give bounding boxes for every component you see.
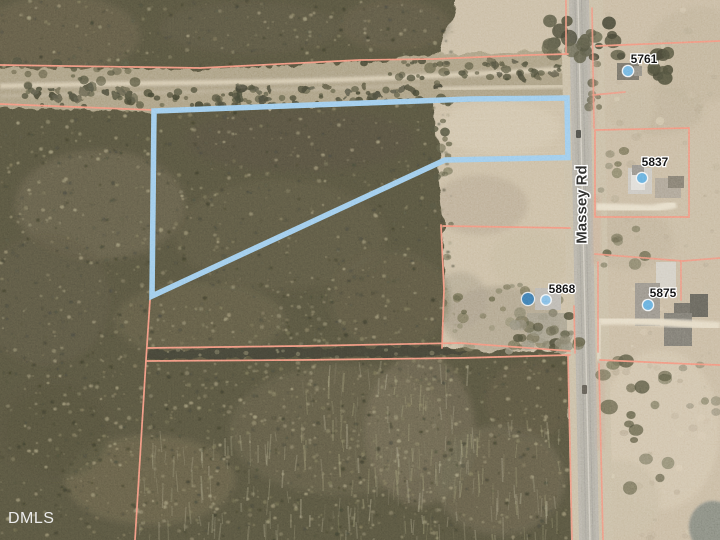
svg-text:DMLS: DMLS <box>8 510 54 527</box>
